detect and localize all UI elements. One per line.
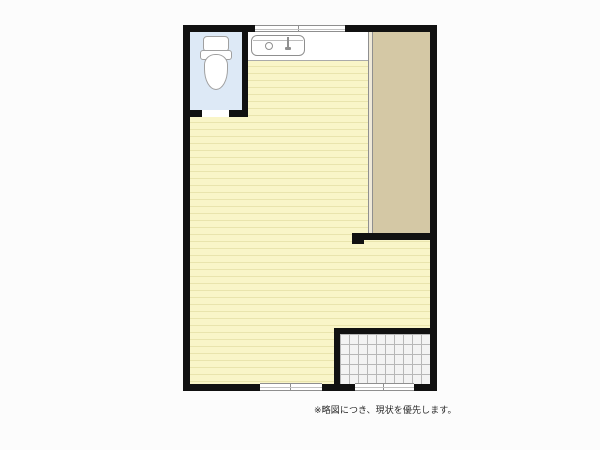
closet-bottom-wall [352, 233, 430, 240]
closet-floor [373, 32, 430, 233]
disclaimer-note: ※略図につき、現状を優先します。 [314, 403, 457, 416]
sink-icon [251, 35, 305, 56]
toilet-bottom-wall-right [229, 110, 242, 117]
faucet-base [285, 47, 291, 50]
toilet-bowl [204, 54, 228, 90]
floorplan-image: ※略図につき、現状を優先します。 [0, 0, 600, 450]
tiled-entrance-floor [340, 334, 430, 384]
floorplan-outer-walls [183, 25, 437, 391]
entrance-top-wall [334, 328, 430, 334]
bottom-sliding-window-right [355, 383, 414, 391]
toilet-door-opening [202, 110, 229, 117]
top-window [255, 25, 345, 32]
entrance-left-wall [334, 328, 340, 384]
sink-edge-line [253, 40, 303, 41]
toilet-icon [190, 32, 242, 110]
toilet-bottom-wall-left [190, 110, 202, 117]
bottom-sliding-window-left [260, 383, 322, 391]
kitchen-counter [248, 32, 368, 61]
closet-wall-nub [352, 240, 364, 244]
sink-drain-icon [265, 42, 273, 50]
